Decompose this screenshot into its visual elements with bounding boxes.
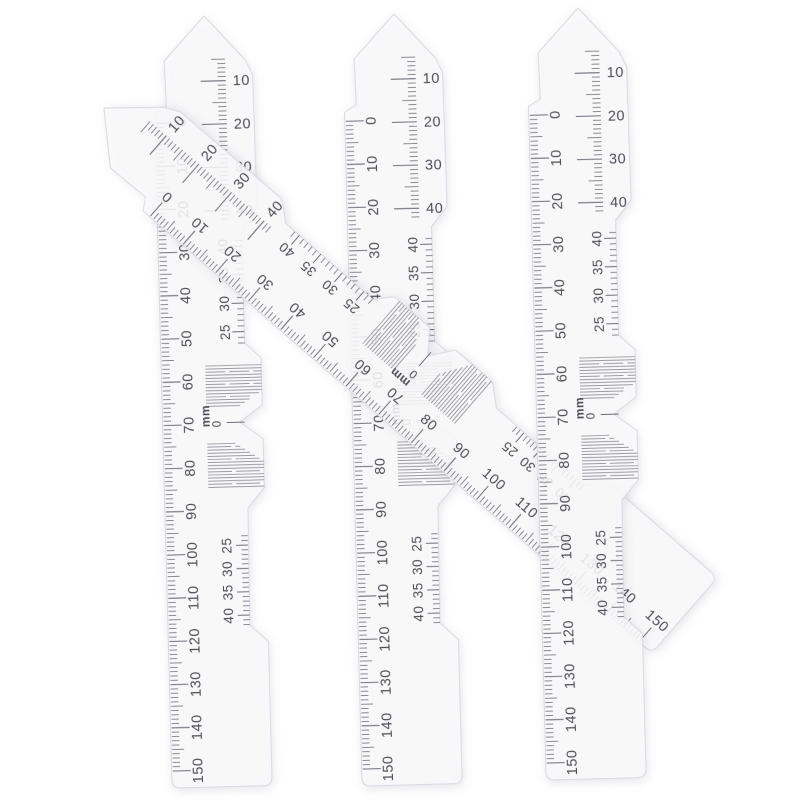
scale-number: 10 bbox=[423, 71, 441, 87]
tick-mark bbox=[575, 73, 600, 74]
scale-number: 35 bbox=[590, 259, 605, 275]
scale-number: 40 bbox=[411, 605, 426, 621]
scale-number: 35 bbox=[410, 582, 425, 598]
scale-number: 110 bbox=[560, 577, 577, 602]
tick-mark bbox=[578, 202, 603, 203]
scale-number: 20 bbox=[608, 108, 626, 124]
scale-number: 25 bbox=[219, 537, 234, 553]
scale-number: 30 bbox=[410, 559, 425, 575]
scale-number: 30 bbox=[425, 157, 443, 173]
scale-number: 25 bbox=[218, 324, 233, 340]
scale-number: 110 bbox=[186, 585, 203, 610]
scale-number: 0 bbox=[548, 110, 564, 119]
scale-number: 80 bbox=[183, 459, 199, 477]
ruler-body bbox=[526, 7, 646, 780]
tick-mark bbox=[577, 159, 602, 160]
scale-number: 0 bbox=[364, 116, 380, 125]
scale-number: 25 bbox=[593, 529, 608, 545]
scale-number: 60 bbox=[180, 373, 196, 391]
scale-number: 100 bbox=[559, 533, 576, 559]
scale-number: 80 bbox=[373, 457, 389, 475]
scale-number: 140 bbox=[563, 706, 580, 732]
scale-number: 120 bbox=[377, 626, 394, 652]
tick-mark bbox=[391, 79, 416, 80]
tick-mark bbox=[576, 116, 601, 117]
scale-number: 90 bbox=[184, 503, 200, 521]
scale-number: 25 bbox=[409, 535, 424, 551]
scale-number: 40 bbox=[595, 599, 610, 615]
scale-number: mm bbox=[572, 397, 587, 420]
scale-number: 20 bbox=[366, 198, 382, 216]
scale-number: 40 bbox=[178, 287, 194, 305]
scale-number: 130 bbox=[562, 663, 579, 689]
scale-number: 150 bbox=[564, 749, 581, 775]
scale-number: 40 bbox=[221, 607, 236, 623]
scale-number: 30 bbox=[551, 235, 567, 253]
photo-canvas: 1020304001020304050607080901001101201301… bbox=[0, 0, 800, 800]
scale-number: 10 bbox=[365, 155, 381, 173]
scale-number: 140 bbox=[189, 714, 206, 740]
scale-number: 120 bbox=[561, 620, 578, 646]
scale-number: 0 bbox=[586, 412, 598, 419]
scale-number: 10 bbox=[233, 73, 251, 89]
tick-mark bbox=[394, 208, 419, 209]
tick-mark bbox=[201, 81, 226, 82]
scale-number: 150 bbox=[190, 757, 207, 783]
tick-mark bbox=[393, 165, 418, 166]
scale-number: 40 bbox=[610, 195, 628, 211]
scale-number: 25 bbox=[592, 316, 607, 332]
scale-number: 20 bbox=[550, 192, 566, 210]
scale-number: 70 bbox=[181, 416, 197, 434]
scale-number: 40 bbox=[405, 236, 420, 252]
scale-number: 40 bbox=[552, 279, 568, 297]
scale-number: 30 bbox=[609, 151, 627, 167]
scale-number: 40 bbox=[426, 201, 444, 217]
tick-mark bbox=[392, 122, 417, 123]
scale-number: 150 bbox=[380, 755, 397, 781]
scale-number: 10 bbox=[549, 149, 565, 167]
scale-number: 10 bbox=[607, 65, 625, 81]
pd-ruler-right: 1020304001020304050607080901001101201301… bbox=[503, 0, 674, 798]
scale-number: 50 bbox=[553, 322, 569, 340]
scale-number: 80 bbox=[557, 451, 573, 469]
scale-number: 30 bbox=[220, 561, 235, 577]
scale-number: 130 bbox=[188, 671, 205, 697]
scale-number: 60 bbox=[554, 365, 570, 383]
scale-number: 30 bbox=[594, 553, 609, 569]
scale-number: 35 bbox=[594, 576, 609, 592]
scale-number: 90 bbox=[374, 501, 390, 519]
scale-number: 100 bbox=[185, 541, 202, 567]
scale-number: 30 bbox=[591, 287, 606, 303]
scale-number: 40 bbox=[589, 230, 604, 246]
scale-number: 140 bbox=[379, 712, 396, 738]
scale-number: 120 bbox=[187, 628, 204, 654]
scale-number: mm bbox=[198, 405, 213, 428]
scale-number: 50 bbox=[179, 330, 195, 348]
scale-number: 0 bbox=[212, 420, 224, 427]
scale-number: 130 bbox=[378, 669, 395, 695]
scale-number: 20 bbox=[424, 114, 442, 130]
scale-number: 70 bbox=[555, 408, 571, 426]
scale-number: 100 bbox=[375, 539, 392, 565]
scale-number: 35 bbox=[220, 584, 235, 600]
scale-number: 110 bbox=[376, 583, 393, 608]
scale-number: 90 bbox=[558, 495, 574, 513]
